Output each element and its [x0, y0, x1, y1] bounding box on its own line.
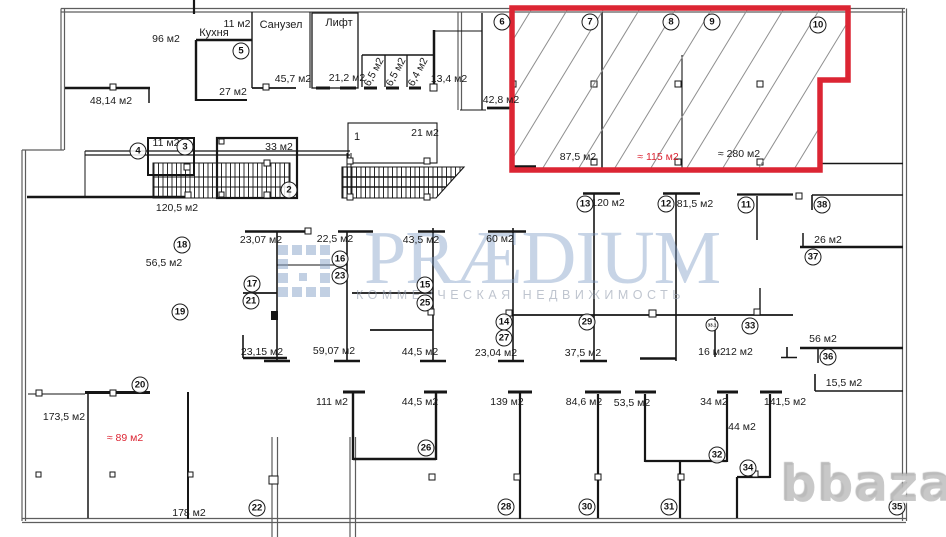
room-number-badge: 6 [494, 14, 511, 31]
outer-walls [22, 9, 907, 537]
room-number-badge: 37 [805, 249, 822, 266]
area-label: 173,5 м2 [43, 411, 85, 423]
area-label: ≈ 89 м2 [107, 432, 143, 444]
room-number-badge: 29 [579, 314, 596, 331]
room-number-badge: 8 [663, 14, 680, 31]
floorplan-walls [0, 0, 946, 537]
room-number-badge: 32 [709, 447, 726, 464]
area-label: 21 м2 [411, 127, 439, 139]
area-label: 120 м2 [591, 197, 625, 209]
room-number-badge: 2 [281, 182, 298, 199]
area-label: 23,07 м2 [240, 234, 282, 246]
room-number-badge: 14 [496, 314, 513, 331]
room-number-badge: 22 [249, 500, 266, 517]
room-number-badge: 30 [579, 499, 596, 516]
room-number-badge: 33.1 [706, 319, 719, 332]
room-name-label: Кухня [199, 27, 228, 39]
room-name-label: Лифт [325, 17, 352, 29]
area-label: 23,04 м2 [475, 347, 517, 359]
room-number-badge: 36 [820, 349, 837, 366]
area-label: 139 м2 [490, 396, 524, 408]
room-number-badge: 12 [658, 196, 675, 213]
room-number-badge: 27 [496, 330, 513, 347]
area-label: 96 м2 [152, 33, 180, 45]
area-label: ≈ 280 м2 [718, 148, 760, 160]
room-number-badge: 7 [582, 14, 599, 31]
room-number-badge: 17 [244, 276, 261, 293]
area-label: 34 м2 [700, 396, 728, 408]
room-number-badge: 26 [418, 440, 435, 457]
room-number-badge: 3 [177, 139, 194, 156]
room-number-badge: 11 [738, 197, 755, 214]
room-number-badge: 38 [814, 197, 831, 214]
area-label: 22,5 м2 [317, 233, 353, 245]
area-label: 178 м2 [172, 507, 206, 519]
room-number-badge: 4 [130, 143, 147, 160]
area-label: 37,5 м2 [565, 347, 601, 359]
area-label: 87,5 м2 [560, 151, 596, 163]
area-label: 33 м2 [265, 141, 293, 153]
room-number-badge: 19 [172, 304, 189, 321]
highlight-region-outline [512, 8, 848, 170]
area-label: 21,2 м2 [329, 72, 365, 84]
area-label: 120,5 м2 [156, 202, 198, 214]
area-label: 42,8 м2 [483, 94, 519, 106]
area-label: 44,5 м2 [402, 396, 438, 408]
area-label: 48,14 м2 [90, 95, 132, 107]
area-label: 11 м2 [153, 137, 180, 149]
room-number-badge: 31 [661, 499, 678, 516]
room-number-badge: 28 [498, 499, 515, 516]
area-label: 44 м2 [728, 421, 756, 433]
area-label: 56 м2 [809, 333, 837, 345]
area-label: 56,5 м2 [146, 257, 182, 269]
room-number-badge: 15 [417, 277, 434, 294]
room-number-badge: 34 [740, 460, 757, 477]
room-number-badge: 5 [233, 43, 250, 60]
room-number-badge: 25 [417, 295, 434, 312]
area-label: 26 м2 [814, 234, 842, 246]
area-label: 44,5 м2 [402, 346, 438, 358]
area-label: 43,5 м2 [403, 234, 439, 246]
room-number-badge: 35 [889, 499, 906, 516]
area-label: 111 м2 [316, 396, 348, 408]
area-label: 53,5 м2 [614, 397, 650, 409]
area-label: 141,5 м2 [764, 396, 806, 408]
room-number-badge: 10 [810, 17, 827, 34]
room-number-badge: 20 [132, 377, 149, 394]
area-label: 45,7 м2 [275, 73, 311, 85]
room-name-label: Санузел [260, 19, 303, 31]
floorplan-canvas: PRÆDIUM КОММЕРЧЕСКАЯ НЕДВИЖИМОСТЬ 96 м21… [0, 0, 946, 537]
room-number-badge: 33 [742, 318, 759, 335]
area-label: 12 м2 [725, 346, 753, 358]
area-label: ≈ 115 м2 [637, 151, 678, 163]
room-number-badge: 16 [332, 251, 349, 268]
room-number-badge: 9 [704, 14, 721, 31]
room-number-badge: 13 [577, 196, 594, 213]
area-label: 13,4 м2 [431, 73, 467, 85]
area-label: 27 м2 [219, 86, 247, 98]
room-number-badge: 23 [332, 268, 349, 285]
room-name-label: 1 [354, 131, 360, 143]
area-label: 81,5 м2 [677, 198, 713, 210]
area-label: 59,07 м2 [313, 345, 355, 357]
area-label: 84,6 м2 [566, 396, 602, 408]
area-label: 23,15 м2 [241, 346, 283, 358]
area-label: 15,5 м2 [826, 377, 862, 389]
area-label: 16 м2 [698, 346, 726, 358]
area-label: 60 м2 [486, 233, 514, 245]
room-number-badge: 21 [243, 293, 260, 310]
room-number-badge: 18 [174, 237, 191, 254]
